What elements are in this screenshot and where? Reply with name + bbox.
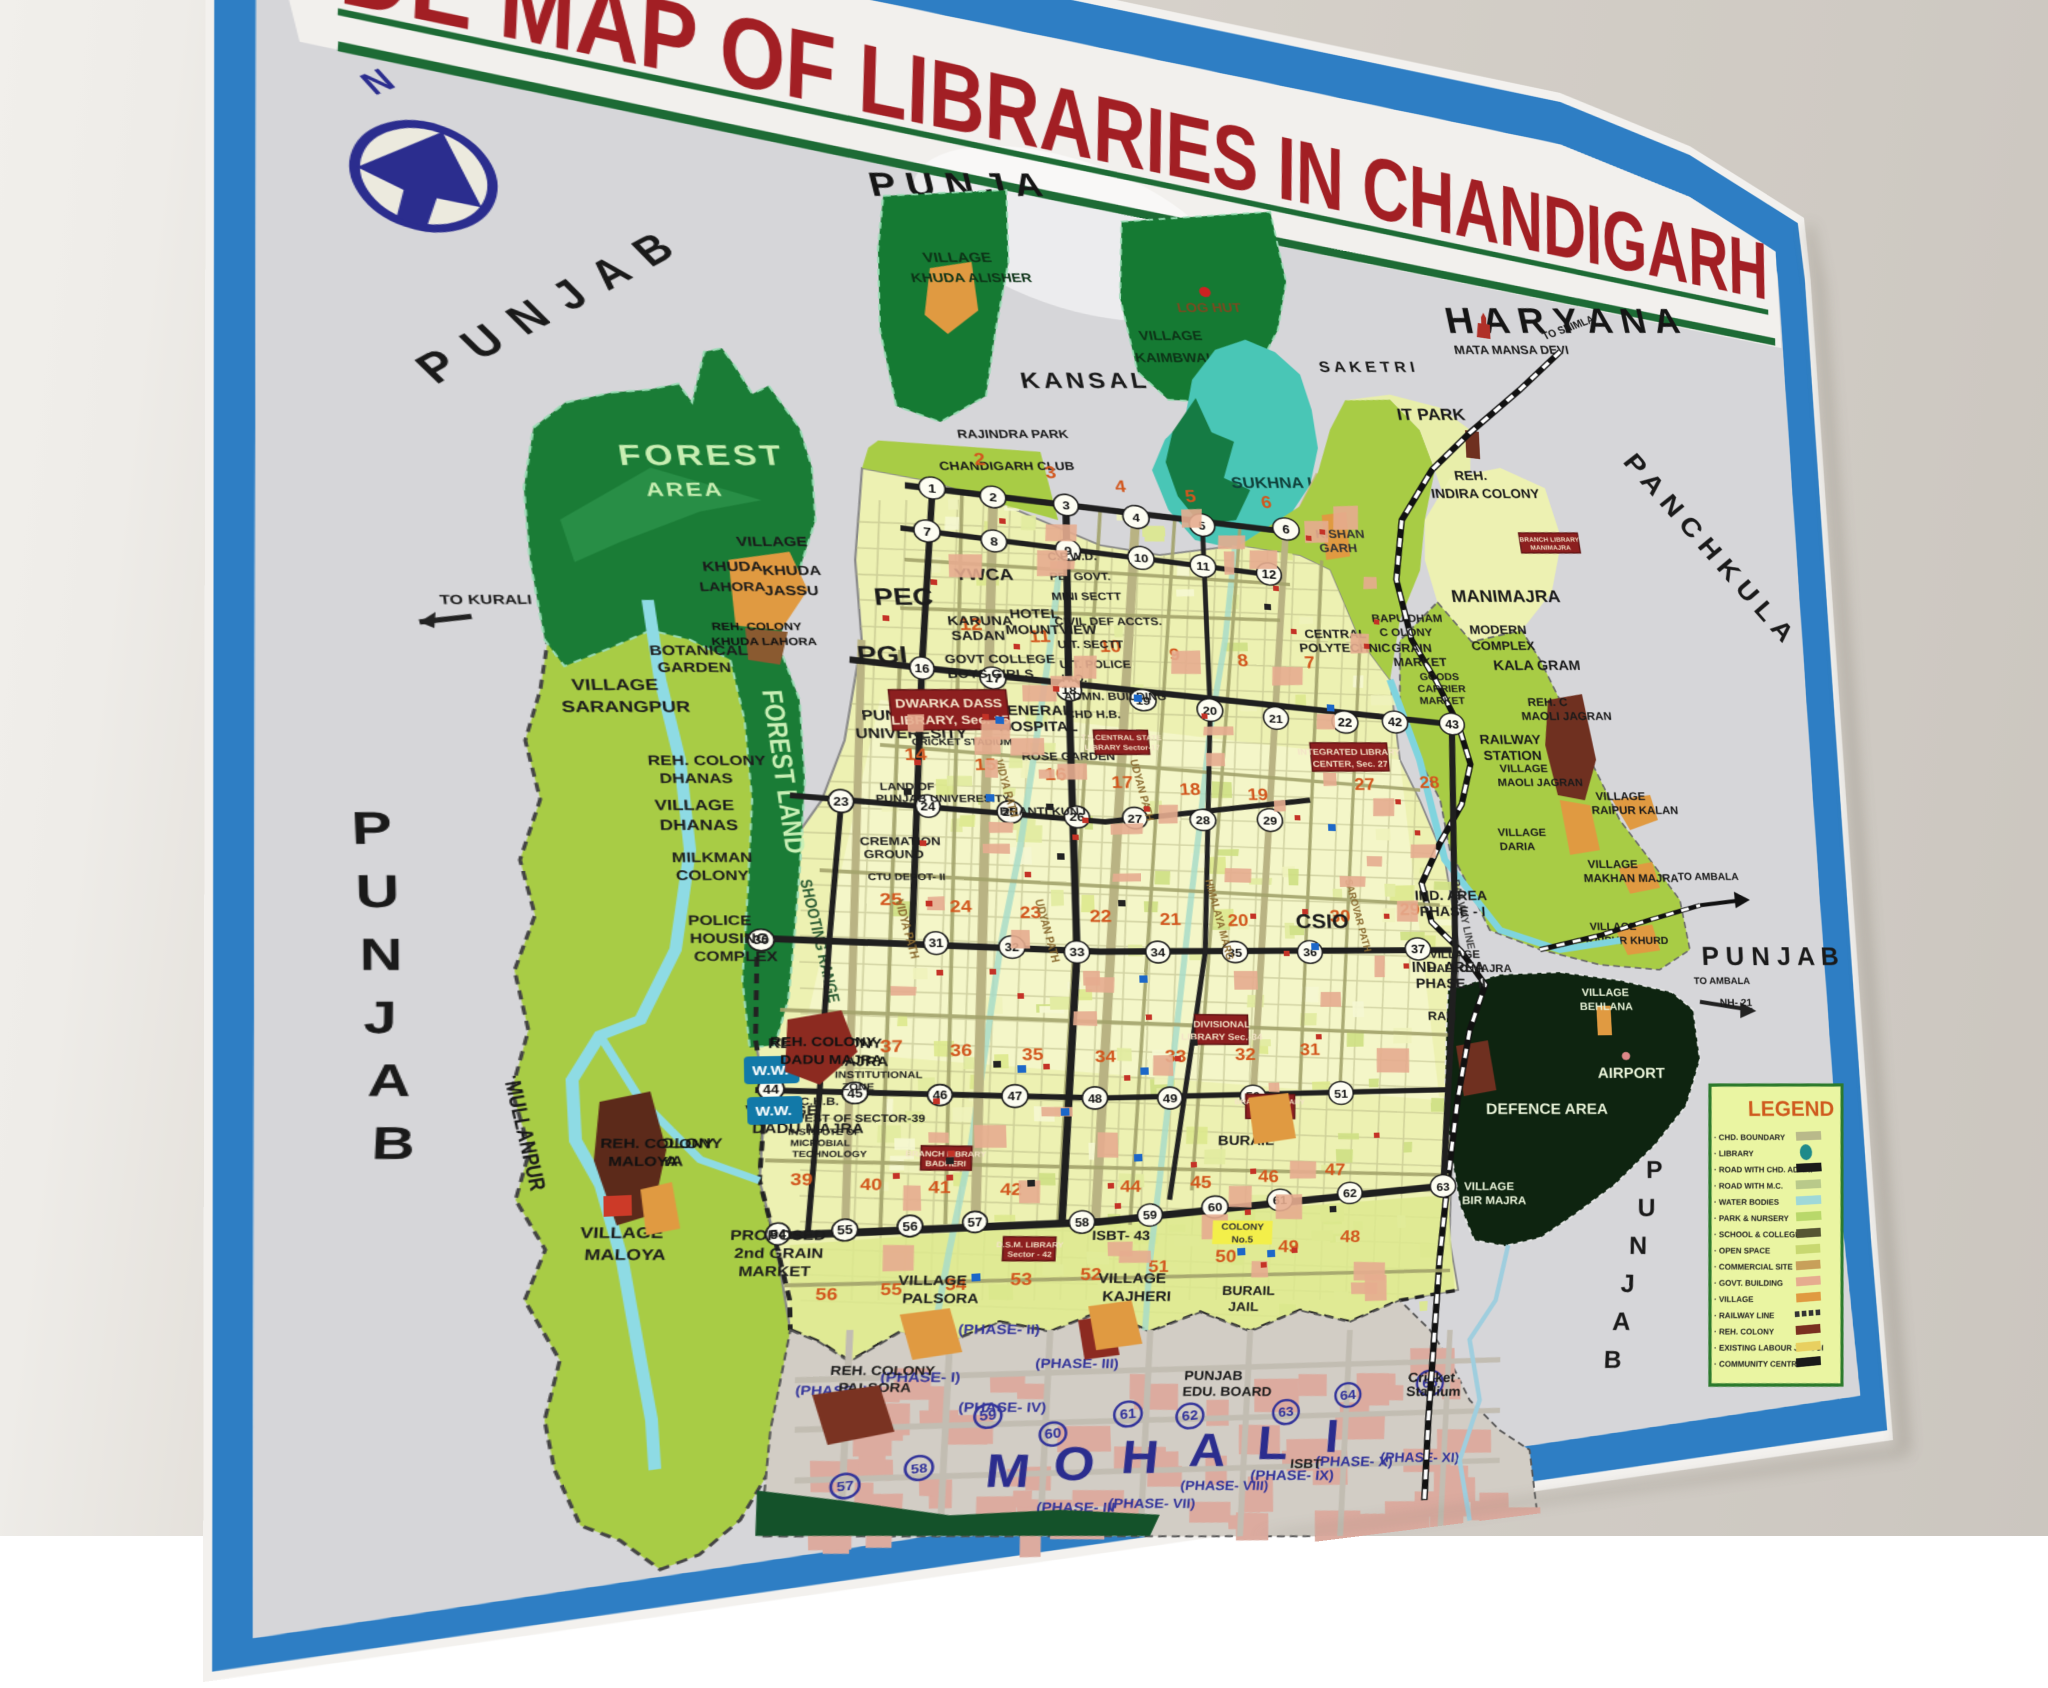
svg-text:VILLAGE: VILLAGE: [1430, 949, 1481, 961]
svg-text:PUNJAB: PUNJAB: [1184, 1368, 1243, 1383]
svg-text:PROPOSED: PROPOSED: [730, 1227, 827, 1243]
svg-text:PHASE - II: PHASE - II: [1416, 977, 1487, 992]
svg-text:P: P: [350, 802, 393, 854]
svg-text:COMPLEX: COMPLEX: [1471, 640, 1536, 654]
svg-text:VILLAGE: VILLAGE: [1497, 827, 1546, 839]
svg-text:56: 56: [902, 1220, 918, 1234]
svg-text:VILLAGE: VILLAGE: [1464, 1181, 1514, 1193]
svg-text:44: 44: [1120, 1177, 1142, 1196]
svg-text:42: 42: [1388, 715, 1403, 729]
svg-text:55: 55: [837, 1224, 853, 1238]
svg-text:LIBRARY Sector-17: LIBRARY Sector-17: [1084, 744, 1160, 752]
svg-text:COLONY: COLONY: [675, 868, 749, 884]
svg-text:21: 21: [1269, 713, 1283, 726]
svg-text:GARH: GARH: [1318, 541, 1358, 554]
svg-text:47: 47: [1325, 1160, 1345, 1179]
svg-text:MICROBIAL: MICROBIAL: [790, 1139, 851, 1148]
svg-text:GARDEN: GARDEN: [657, 660, 732, 675]
svg-text:DADU MAJRA: DADU MAJRA: [780, 1053, 882, 1067]
svg-text:KHUDA: KHUDA: [761, 563, 822, 578]
svg-text:35: 35: [1022, 1045, 1044, 1064]
svg-text:22: 22: [1089, 907, 1112, 926]
svg-text:REH. COLONY: REH. COLONY: [770, 1035, 876, 1049]
svg-text:64: 64: [1340, 1387, 1357, 1403]
svg-text:· ROAD WITH M.C.: · ROAD WITH M.C.: [1714, 1182, 1783, 1191]
svg-text:50: 50: [1215, 1247, 1237, 1267]
svg-text:60: 60: [1044, 1425, 1062, 1442]
svg-text:18: 18: [1179, 780, 1202, 799]
svg-text:62: 62: [1343, 1187, 1357, 1200]
svg-text:56: 56: [815, 1284, 839, 1304]
svg-text:BRANCH LIBRARY: BRANCH LIBRARY: [1519, 537, 1580, 544]
svg-text:A: A: [1187, 1424, 1228, 1476]
svg-text:TO AMBALA: TO AMBALA: [1694, 976, 1751, 987]
svg-text:VILLAGE: VILLAGE: [654, 798, 735, 814]
svg-text:CREMATION: CREMATION: [859, 835, 941, 848]
svg-text:29: 29: [1263, 815, 1277, 828]
svg-text:MINI SECTT: MINI SECTT: [1051, 591, 1123, 603]
svg-text:DIVISIONAL: DIVISIONAL: [1193, 1019, 1250, 1029]
svg-text:63: 63: [1436, 1181, 1450, 1194]
svg-text:CENTER, Sec. 27: CENTER, Sec. 27: [1312, 759, 1388, 768]
svg-text:· RAILWAY LINE: · RAILWAY LINE: [1714, 1311, 1775, 1320]
svg-text:BADHERI: BADHERI: [925, 1160, 966, 1169]
svg-text:DHANAS: DHANAS: [659, 817, 738, 833]
svg-text:AREA: AREA: [644, 479, 725, 500]
svg-text:GOVT COLLEGE: GOVT COLLEGE: [944, 653, 1056, 666]
svg-text:· LIBRARY: · LIBRARY: [1714, 1149, 1754, 1158]
svg-text:EDU. BOARD: EDU. BOARD: [1182, 1384, 1272, 1399]
svg-text:KARUNA: KARUNA: [946, 613, 1013, 628]
svg-text:BURAIL: BURAIL: [1222, 1283, 1275, 1297]
svg-text:PHASE - I: PHASE - I: [1419, 905, 1486, 920]
svg-text:KALA GRAM: KALA GRAM: [1492, 657, 1581, 673]
svg-text:23: 23: [833, 796, 849, 809]
svg-text:46: 46: [1258, 1167, 1279, 1186]
svg-text:58: 58: [1075, 1217, 1090, 1230]
svg-text:10: 10: [1134, 552, 1149, 566]
svg-text:HOUSING: HOUSING: [690, 930, 770, 946]
svg-text:HOTEL: HOTEL: [1008, 607, 1060, 621]
svg-text:VILLAGE: VILLAGE: [921, 251, 993, 266]
svg-text:28: 28: [1196, 814, 1211, 827]
svg-text:DARIA: DARIA: [1499, 841, 1535, 853]
svg-text:VILLAGE: VILLAGE: [735, 534, 808, 549]
svg-text:CARRIER: CARRIER: [1417, 683, 1467, 694]
svg-text:BRANCH LIBRARY: BRANCH LIBRARY: [905, 1150, 986, 1159]
svg-text:JASSU: JASSU: [763, 583, 819, 598]
svg-text:8: 8: [1236, 651, 1249, 670]
svg-text:DHANAS: DHANAS: [659, 771, 733, 787]
svg-text:PEC: PEC: [872, 583, 935, 610]
svg-text:RAILWAY: RAILWAY: [1479, 733, 1542, 747]
svg-text:1: 1: [928, 482, 936, 496]
svg-text:BOYS GIRLS: BOYS GIRLS: [947, 668, 1035, 681]
svg-text:VILLAGE: VILLAGE: [571, 677, 660, 694]
svg-text:A: A: [367, 1055, 412, 1106]
svg-text:· COMMUNITY CENTRE: · COMMUNITY CENTRE: [1714, 1360, 1802, 1369]
svg-text:RAIPUR KALAN: RAIPUR KALAN: [1591, 804, 1679, 817]
svg-text:32: 32: [1235, 1045, 1256, 1064]
svg-text:TO AMBALA: TO AMBALA: [1677, 871, 1739, 882]
svg-text:63: 63: [1278, 1404, 1294, 1420]
svg-text:VILLAGE: VILLAGE: [1595, 790, 1646, 803]
svg-text:44: 44: [763, 1083, 780, 1097]
svg-text:ISBT: ISBT: [1290, 1456, 1322, 1471]
svg-text:PGI: PGI: [855, 641, 908, 668]
svg-text:CTU DEPOT- II: CTU DEPOT- II: [868, 872, 946, 883]
svg-text:LAHORA: LAHORA: [699, 580, 767, 594]
svg-text:51: 51: [1334, 1088, 1348, 1101]
svg-text:U: U: [355, 865, 400, 917]
svg-text:17: 17: [1111, 773, 1134, 792]
svg-text:28: 28: [1419, 773, 1441, 792]
svg-text:REH. COLONY: REH. COLONY: [647, 753, 766, 769]
svg-text:WEST OF SECTOR-39: WEST OF SECTOR-39: [792, 1112, 926, 1124]
svg-text:D.S.M. LIBRARY: D.S.M. LIBRARY: [996, 1241, 1064, 1250]
svg-text:BOTANICAL: BOTANICAL: [649, 643, 749, 658]
svg-text:REH. C: REH. C: [1527, 696, 1568, 709]
svg-text:33: 33: [1069, 946, 1085, 959]
svg-text:21: 21: [1159, 910, 1181, 929]
svg-text:REH. COLONY: REH. COLONY: [830, 1364, 936, 1378]
svg-text:B: B: [1603, 1346, 1622, 1373]
svg-text:MARKET: MARKET: [738, 1263, 812, 1279]
svg-text:· GOVT. BUILDING: · GOVT. BUILDING: [1714, 1279, 1783, 1288]
svg-text:J: J: [1620, 1270, 1635, 1298]
svg-text:CHD H.B.: CHD H.B.: [1065, 709, 1121, 721]
svg-text:INSTITUTIONAL: INSTITUTIONAL: [835, 1070, 923, 1081]
svg-text:POLYTECHNIC: POLYTECHNIC: [1299, 641, 1392, 654]
svg-text:· CHD. BOUNDARY: · CHD. BOUNDARY: [1714, 1133, 1786, 1142]
svg-text:T.S.CENTRAL STATE: T.S.CENTRAL STATE: [1081, 734, 1163, 742]
svg-text:16: 16: [914, 663, 929, 676]
svg-text:N: N: [1629, 1232, 1647, 1260]
svg-text:VILLAGE: VILLAGE: [1098, 1271, 1167, 1287]
svg-text:AIRPORT: AIRPORT: [1598, 1064, 1666, 1081]
svg-text:H: H: [1119, 1432, 1161, 1484]
svg-text:U: U: [1637, 1194, 1655, 1221]
svg-text:DWARKA DASS: DWARKA DASS: [894, 697, 1002, 710]
svg-text:M: M: [983, 1444, 1033, 1497]
svg-text:34: 34: [1095, 1047, 1116, 1066]
svg-text:JAIL: JAIL: [1228, 1299, 1259, 1313]
svg-text:48: 48: [1088, 1093, 1102, 1106]
svg-text:S A K E T R I: S A K E T R I: [1317, 358, 1416, 375]
svg-text:47: 47: [1008, 1090, 1023, 1103]
svg-text:(PHASE- III): (PHASE- III): [1035, 1356, 1120, 1371]
svg-text:A: A: [1612, 1308, 1631, 1336]
svg-text:IT PARK: IT PARK: [1395, 406, 1467, 424]
svg-text:59: 59: [979, 1407, 997, 1424]
svg-text:34: 34: [1150, 946, 1166, 959]
svg-text:· VILLAGE: · VILLAGE: [1714, 1295, 1754, 1304]
svg-text:COMPLEX: COMPLEX: [694, 948, 778, 964]
svg-text:48: 48: [1340, 1227, 1361, 1246]
svg-text:24: 24: [949, 896, 972, 915]
svg-text:LOG HUT: LOG HUT: [1176, 301, 1243, 315]
svg-text:U.T. SECTT: U.T. SECTT: [1057, 639, 1125, 651]
svg-text:TECHNOLOGY: TECHNOLOGY: [792, 1150, 867, 1159]
svg-text:INTEGRATED LIBRARY: INTEGRATED LIBRARY: [1297, 747, 1401, 757]
svg-text:CIVIL DEF ACCTS.: CIVIL DEF ACCTS.: [1054, 616, 1163, 628]
svg-text:7: 7: [923, 525, 931, 539]
svg-text:REH.: REH.: [1453, 469, 1488, 483]
svg-text:40: 40: [860, 1175, 883, 1194]
svg-text:No.5: No.5: [1231, 1235, 1253, 1245]
svg-text:REH. COLONY: REH. COLONY: [600, 1137, 714, 1152]
svg-text:HALLO MAJRA: HALLO MAJRA: [1428, 963, 1512, 975]
svg-text:· PARK & NURSERY: · PARK & NURSERY: [1714, 1214, 1789, 1223]
svg-text:B: B: [370, 1118, 416, 1170]
svg-text:· SCHOOL & COLLEGES: · SCHOOL & COLLEGES: [1714, 1230, 1805, 1239]
svg-text:27: 27: [1354, 775, 1376, 794]
svg-text:Sector - 42: Sector - 42: [1007, 1251, 1052, 1259]
svg-text:SARANGPUR: SARANGPUR: [561, 699, 692, 716]
svg-text:C OLONY: C OLONY: [1379, 627, 1433, 639]
svg-text:MARKET: MARKET: [1419, 695, 1466, 706]
svg-text:W.W.: W.W.: [755, 1104, 792, 1119]
svg-text:SADAN: SADAN: [951, 628, 1006, 643]
svg-text:BEHLANA: BEHLANA: [1580, 1001, 1634, 1013]
svg-text:43: 43: [1445, 718, 1459, 732]
svg-text:· WATER BODIES: · WATER BODIES: [1714, 1198, 1779, 1207]
svg-text:22: 22: [1337, 715, 1352, 729]
svg-text:59: 59: [1143, 1209, 1157, 1222]
svg-text:BAPU DHAM: BAPU DHAM: [1371, 613, 1443, 625]
svg-text:60: 60: [1208, 1201, 1223, 1215]
svg-text:MARKET: MARKET: [1393, 655, 1448, 668]
svg-text:· OPEN SPACE: · OPEN SPACE: [1714, 1246, 1770, 1255]
svg-text:PALSORA: PALSORA: [902, 1291, 979, 1306]
svg-text:KANSAL: KANSAL: [1018, 368, 1152, 393]
svg-text:58: 58: [911, 1461, 928, 1477]
svg-text:53: 53: [1010, 1269, 1033, 1289]
svg-text:MAOLI JAGRAN: MAOLI JAGRAN: [1497, 777, 1583, 789]
svg-text:2nd GRAIN: 2nd GRAIN: [734, 1245, 824, 1261]
svg-text:IND. AREA: IND. AREA: [1414, 889, 1487, 904]
svg-text:GRAIN: GRAIN: [1391, 641, 1433, 654]
svg-text:57: 57: [967, 1216, 982, 1230]
svg-text:GROUND: GROUND: [863, 848, 924, 861]
svg-text:C.H.B.: C.H.B.: [800, 1095, 839, 1107]
svg-text:NH- 21: NH- 21: [1720, 997, 1753, 1008]
svg-text:RAJINDRA PARK: RAJINDRA PARK: [956, 428, 1069, 441]
svg-text:VILLAGE: VILLAGE: [1582, 987, 1629, 999]
svg-text:KHUDA: KHUDA: [701, 559, 763, 574]
svg-text:7: 7: [1303, 653, 1316, 672]
svg-text:MANIMAJRA: MANIMAJRA: [1530, 545, 1572, 552]
svg-text:(PHASE- XI): (PHASE- XI): [1380, 1451, 1460, 1466]
svg-text:DEFENCE AREA: DEFENCE AREA: [1486, 1100, 1608, 1117]
svg-text:VILLAGE: VILLAGE: [1587, 858, 1638, 871]
svg-text:GOODS: GOODS: [1419, 671, 1460, 682]
svg-text:· COMMERCIAL SITE: · COMMERCIAL SITE: [1714, 1262, 1793, 1271]
svg-text:62: 62: [1182, 1408, 1199, 1424]
svg-text:VILLAGE: VILLAGE: [898, 1273, 968, 1288]
svg-text:ADMN. BUILDING: ADMN. BUILDING: [1063, 691, 1167, 703]
svg-text:TO KURALI: TO KURALI: [439, 593, 533, 607]
svg-text:37: 37: [1411, 942, 1426, 956]
svg-text:COLONY: COLONY: [1221, 1222, 1264, 1232]
svg-text:36: 36: [950, 1040, 972, 1060]
svg-text:O: O: [1051, 1438, 1097, 1491]
svg-text:KAJHERI: KAJHERI: [1102, 1289, 1172, 1305]
svg-text:J: J: [363, 992, 397, 1043]
svg-text:LEGEND: LEGEND: [1748, 1097, 1835, 1121]
svg-text:49: 49: [1162, 1092, 1177, 1105]
svg-text:12: 12: [1261, 567, 1276, 582]
svg-text:(PHASE- VII): (PHASE- VII): [1108, 1496, 1196, 1511]
svg-text:POLICE: POLICE: [688, 913, 752, 929]
svg-text:2: 2: [989, 491, 997, 505]
svg-text:31: 31: [1300, 1040, 1321, 1059]
svg-text:VILLAGE: VILLAGE: [1138, 329, 1204, 343]
svg-text:BIR MAJRA: BIR MAJRA: [1462, 1194, 1526, 1206]
svg-text:ZONE: ZONE: [842, 1082, 874, 1093]
svg-text:20: 20: [1227, 911, 1249, 930]
svg-text:INSTITUTE OF: INSTITUTE OF: [788, 1128, 861, 1137]
svg-text:MILKMAN: MILKMAN: [671, 850, 752, 866]
svg-text:3: 3: [1062, 499, 1070, 512]
svg-text:31: 31: [928, 937, 944, 950]
svg-text:P U N J A B: P U N J A B: [1701, 941, 1840, 971]
svg-text:N: N: [359, 929, 402, 980]
svg-text:MAOLI JAGRAN: MAOLI JAGRAN: [1521, 710, 1613, 723]
svg-text:(PHASE- II): (PHASE- II): [958, 1322, 1041, 1337]
svg-text:KHUDA ALISHER: KHUDA ALISHER: [909, 271, 1033, 285]
svg-text:4: 4: [1132, 511, 1140, 524]
svg-text:REH. COLONY: REH. COLONY: [711, 620, 803, 632]
svg-text:61: 61: [1120, 1406, 1137, 1422]
svg-text:FOREST: FOREST: [616, 440, 788, 472]
svg-text:MALOYA: MALOYA: [584, 1247, 667, 1264]
svg-text:· REH. COLONY: · REH. COLONY: [1714, 1327, 1775, 1336]
svg-text:ISBT- 43: ISBT- 43: [1092, 1228, 1151, 1243]
svg-text:MAKHAN MAJRA: MAKHAN MAJRA: [1583, 872, 1679, 885]
svg-text:45: 45: [1190, 1173, 1212, 1192]
svg-text:57: 57: [836, 1479, 853, 1495]
svg-text:39: 39: [790, 1169, 813, 1189]
svg-text:11: 11: [1196, 560, 1210, 573]
svg-text:INDIRA COLONY: INDIRA COLONY: [1430, 487, 1541, 501]
svg-text:VILLAGE: VILLAGE: [1499, 763, 1548, 775]
svg-text:19: 19: [1247, 785, 1269, 804]
svg-text:STATION: STATION: [1483, 749, 1543, 763]
svg-text:P: P: [1646, 1157, 1663, 1184]
svg-text:MODERN: MODERN: [1469, 624, 1528, 638]
svg-text:MALOYA: MALOYA: [608, 1155, 678, 1170]
svg-text:6: 6: [1282, 522, 1290, 536]
svg-text:8: 8: [990, 535, 998, 549]
svg-text:49: 49: [1278, 1237, 1299, 1256]
svg-text:MANIMAJRA: MANIMAJRA: [1450, 586, 1562, 605]
